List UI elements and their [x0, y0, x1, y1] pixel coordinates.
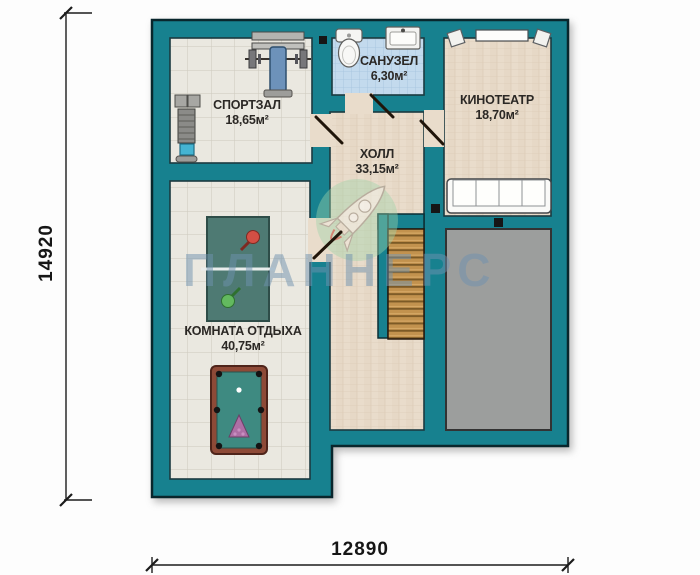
- dimension-line-left: [60, 7, 92, 506]
- room-area: 18,70м²: [460, 108, 534, 123]
- room-label-gym: СПОРТЗАЛ 18,65м²: [213, 98, 281, 128]
- ping-pong-table-icon: [201, 217, 275, 321]
- room-area: 33,15м²: [355, 162, 398, 177]
- sofa-icon: [447, 179, 551, 213]
- dimension-label-left: 14920: [36, 224, 58, 282]
- sink-icon: [386, 27, 420, 49]
- floor-plan-drawing: [0, 0, 700, 575]
- room-area: 18,65м²: [213, 113, 281, 128]
- room-label-cinema: КИНОТЕАТР 18,70м²: [460, 93, 534, 123]
- room-name: КИНОТЕАТР: [460, 93, 534, 108]
- room-name: КОМНАТА ОТДЫХА: [184, 324, 301, 339]
- tv-icon: [476, 30, 528, 41]
- room-label-hall: ХОЛЛ 33,15м²: [355, 147, 398, 177]
- room-name: СПОРТЗАЛ: [213, 98, 281, 113]
- toilet-icon: [336, 29, 362, 67]
- room-area: 40,75м²: [184, 339, 301, 354]
- floor-plan-canvas: СПОРТЗАЛ 18,65м² САНУЗЕЛ 6,30м² КИНОТЕАТ…: [0, 0, 700, 575]
- room-name: ХОЛЛ: [355, 147, 398, 162]
- room-label-lounge: КОМНАТА ОТДЫХА 40,75м²: [184, 324, 301, 354]
- room-area: 6,30м²: [360, 69, 418, 84]
- pool-table-icon: [211, 366, 267, 454]
- dimension-label-bottom: 12890: [331, 539, 389, 561]
- room-label-bathroom: САНУЗЕЛ 6,30м²: [360, 54, 418, 84]
- roof-void-area: [446, 229, 551, 430]
- room-name: САНУЗЕЛ: [360, 54, 418, 69]
